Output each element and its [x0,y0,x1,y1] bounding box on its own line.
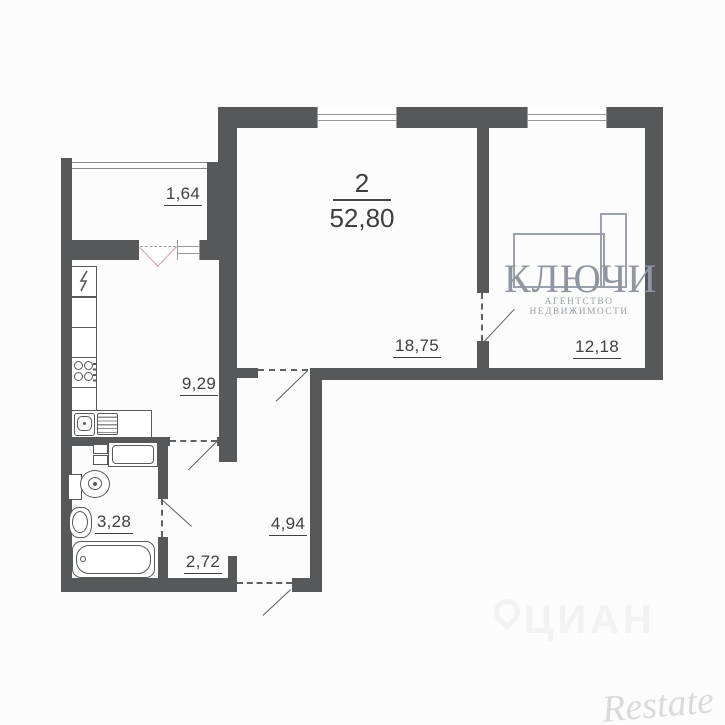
wall-bottom-left [61,578,237,592]
brand-watermark: Restate [600,678,715,725]
rooms-count: 2 [322,168,402,198]
label-hallway-area: 4,94 [255,514,321,534]
title-divider [333,199,391,201]
label-kitchen-area: 9,29 [166,374,232,394]
kitchen-cabinet-3 [71,387,97,411]
portal-watermark: ЦИАН [524,598,656,643]
wall-bath-right-lower [158,537,168,592]
bathtub-drain [80,556,86,562]
washing-machine-drum [112,445,154,464]
stove-knobs [93,363,96,383]
bath-shelf-1 [93,444,108,454]
total-area: 52,80 [322,203,402,233]
stove-burner-1 [74,361,83,370]
wall-living-left [218,107,237,260]
dish-drainer [97,413,118,435]
wall-living-door-stub [237,368,258,378]
balcony-door-dash [140,246,176,247]
wall-bath-right-upper [158,437,168,499]
toilet-drain [93,482,97,486]
living-door-swing [276,370,308,401]
floor-plan: 2 52,80 1,64 9,29 18,75 12,18 3,28 4,94 … [0,0,725,725]
living-door-opening [258,369,308,371]
label-living-room-area: 18,75 [384,336,450,356]
entry-door-opening [237,582,292,584]
bathtub-inner [76,545,151,574]
label-balcony-area: 1,64 [150,184,216,204]
bath-shelf-2 [93,455,108,465]
label-bathroom-area: 3,28 [81,512,147,532]
agency-name: КЛЮЧИ [504,255,654,302]
window-living-room [317,107,397,128]
wall-balcony-left [61,158,72,240]
kitchen-door-opening [170,440,217,442]
kitchen-cabinet-2 [71,327,97,358]
bathroom-door-opening [161,499,163,537]
agency-watermark: КЛЮЧИ АГЕНТСТВО НЕДВИЖИМОСТИ [504,213,654,313]
fridge [71,266,97,297]
kitchen-cabinet-1 [71,297,97,328]
label-bedroom-area: 12,18 [564,337,630,357]
lightning-icon [78,270,90,292]
wall-kitchen-bath-stub [217,437,237,446]
plan-title: 2 52,80 [322,168,402,233]
portal-pin-icon [489,594,526,631]
window-kitchen-balcony [177,240,200,260]
wall-room-divider-upper [477,128,489,293]
wall-hallway-east [310,368,322,592]
label-corridor-area: 2,72 [170,552,236,572]
stove-burner-3 [74,372,83,381]
wall-kitchen-right [219,240,237,462]
bedroom-door-opening [481,293,483,341]
agency-tagline: АГЕНТСТВО НЕДВИЖИМОСТИ [504,297,654,317]
wall-room-divider-lower [477,341,489,380]
bathroom-door-swing [162,500,192,527]
window-bedroom [527,107,607,128]
kitchen-sink-drain [83,422,86,425]
wall-bottom-right [292,578,322,592]
balcony-glazing [72,162,207,169]
kitchen-door-swing [188,441,217,470]
entry-door-swing [263,589,291,616]
